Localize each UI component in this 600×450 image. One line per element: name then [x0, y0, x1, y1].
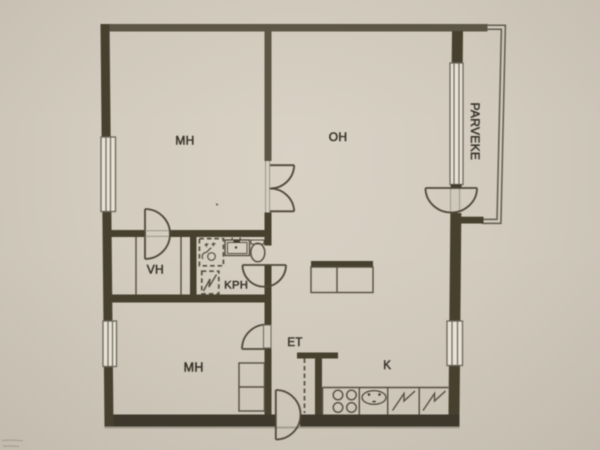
svg-text:MH: MH — [184, 361, 204, 375]
svg-text:VH: VH — [147, 263, 164, 277]
svg-text:KPH: KPH — [224, 279, 248, 291]
svg-text:ET: ET — [287, 337, 302, 349]
svg-text:K: K — [383, 360, 391, 372]
svg-text:MH: MH — [175, 134, 194, 148]
svg-text:PARVEKE: PARVEKE — [468, 103, 482, 161]
svg-text:OH: OH — [329, 130, 348, 144]
